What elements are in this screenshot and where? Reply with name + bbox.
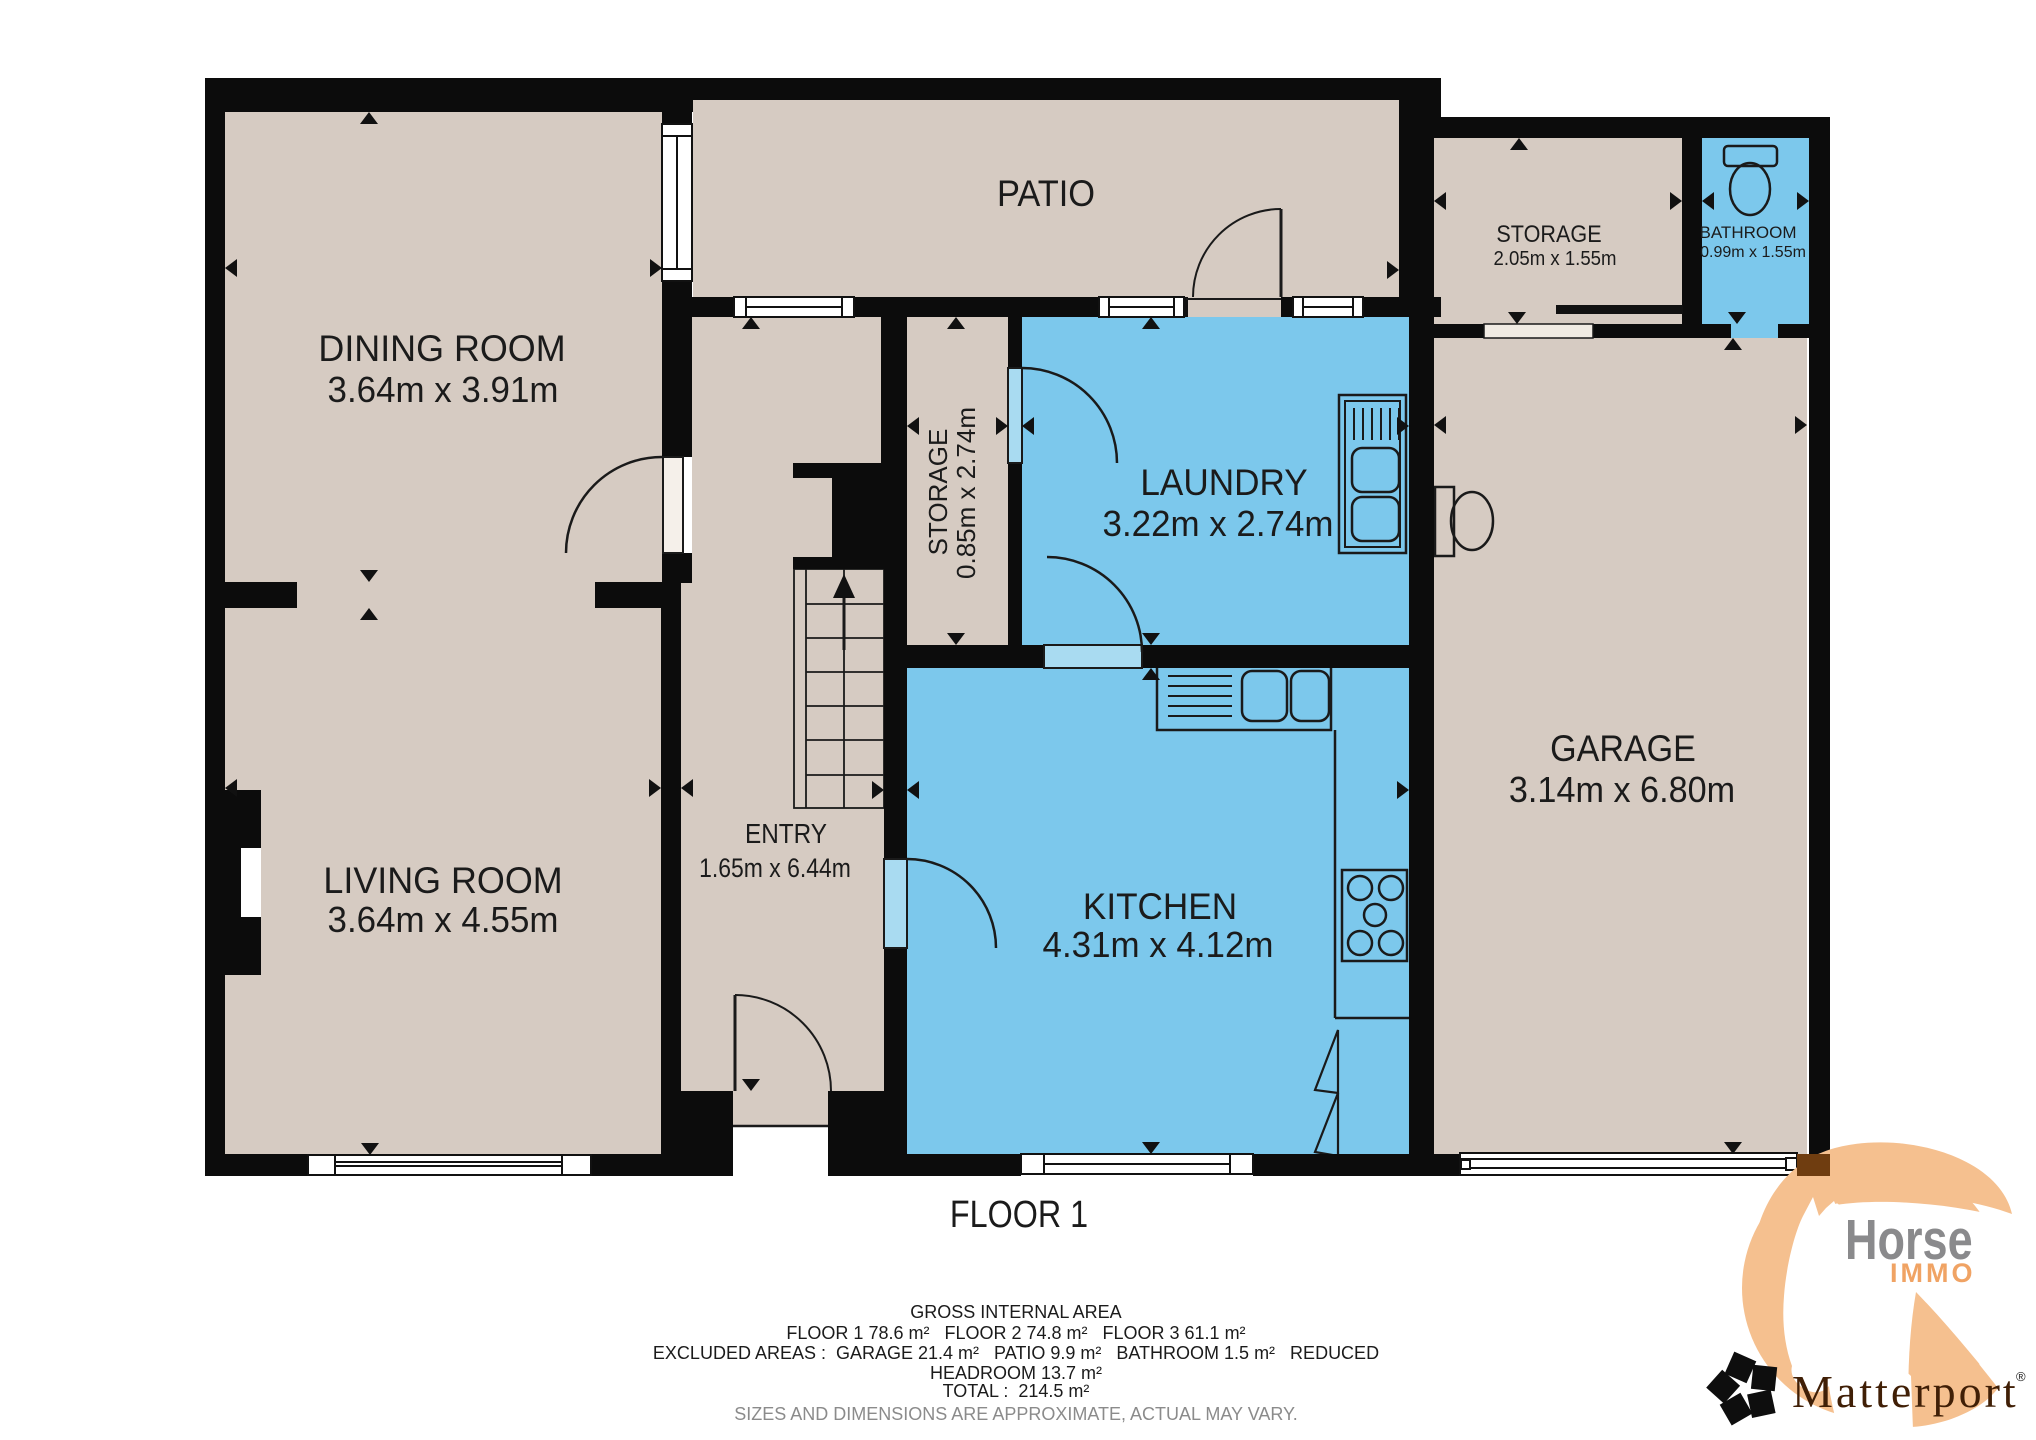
svg-text:LIVING ROOM: LIVING ROOM [323,860,562,902]
svg-text:EXCLUDED AREAS : GARAGE 21.4: EXCLUDED AREAS : GARAGE 21.4 m² PATIO 9.… [653,1343,1379,1363]
svg-text:TOTAL : 214.5 m²: TOTAL : 214.5 m² [943,1381,1090,1401]
svg-text:IMMO: IMMO [1890,1258,1976,1288]
svg-text:PATIO: PATIO [997,173,1095,214]
svg-text:DINING ROOM: DINING ROOM [318,328,565,370]
svg-text:1.65m x 6.44m: 1.65m x 6.44m [699,853,851,883]
svg-text:LAUNDRY: LAUNDRY [1140,461,1307,503]
svg-text:3.64m x 3.91m: 3.64m x 3.91m [328,370,559,411]
svg-text:3.14m x 6.80m: 3.14m x 6.80m [1509,770,1735,810]
svg-text:STORAGE: STORAGE [1496,220,1601,247]
svg-text:0.85m x 2.74m: 0.85m x 2.74m [951,407,981,579]
svg-text:Matterport: Matterport [1792,1366,2019,1417]
svg-text:HEADROOM 13.7 m²: HEADROOM 13.7 m² [930,1363,1102,1383]
svg-text:2.05m x 1.55m: 2.05m x 1.55m [1494,248,1617,270]
svg-text:®: ® [2016,1369,2026,1384]
svg-text:0.99m x 1.55m: 0.99m x 1.55m [1700,244,1806,261]
svg-text:FLOOR 1 78.6 m² FLOOR 2 74.8: FLOOR 1 78.6 m² FLOOR 2 74.8 m² FLOOR 3 … [786,1323,1245,1343]
svg-text:4.31m x 4.12m: 4.31m x 4.12m [1043,925,1274,966]
svg-text:KITCHEN: KITCHEN [1083,885,1237,927]
svg-text:3.64m x 4.55m: 3.64m x 4.55m [328,900,559,941]
svg-text:GROSS INTERNAL AREA: GROSS INTERNAL AREA [910,1302,1121,1322]
svg-text:BATHROOM: BATHROOM [1700,223,1797,242]
svg-text:ENTRY: ENTRY [745,817,827,849]
svg-text:STORAGE: STORAGE [923,429,953,556]
svg-text:FLOOR 1: FLOOR 1 [950,1194,1088,1236]
svg-text:GARAGE: GARAGE [1550,728,1696,770]
svg-text:SIZES AND DIMENSIONS ARE APPRO: SIZES AND DIMENSIONS ARE APPROXIMATE, AC… [734,1404,1298,1424]
svg-text:3.22m x 2.74m: 3.22m x 2.74m [1103,504,1334,545]
